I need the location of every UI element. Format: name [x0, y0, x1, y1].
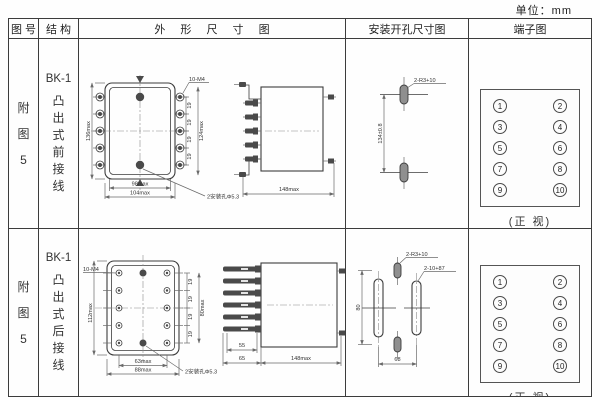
right-dim-label: 124max — [199, 121, 205, 141]
terminal-number: 6 — [553, 141, 567, 155]
structure-cell: BK-1 凸 出 式 前 接 线 — [39, 39, 79, 229]
terminal-panel: 1 2 3 4 5 6 7 8 9 10 — [480, 265, 580, 383]
header-mounting: 安装开孔尺寸图 — [346, 19, 469, 39]
bottom-outer-dim-label: 88max — [135, 368, 152, 374]
rear-studs — [323, 95, 336, 164]
fig-no-cell: 附 图 5 — [9, 39, 39, 229]
height-dim-label: 136max — [86, 121, 92, 141]
right-dim-label: 80max — [200, 299, 206, 316]
spec-sheet-page: 单位：mm 图 号 结 构 外 形 尺 寸 图 安装开孔尺寸图 端子图 附 图 … — [0, 0, 600, 400]
mounting-screw — [140, 270, 147, 277]
side-terminal-studs — [243, 100, 261, 163]
hole-label: 2安装孔Φ5.3 — [185, 368, 217, 376]
terminal-caption: (正 视) — [480, 213, 580, 229]
vertical-dim-label: 134±0.8 — [378, 123, 384, 143]
outline-cell: 136max 19 19 19 19 124max 10-M4 — [79, 39, 346, 229]
blade-dimension: 55 — [227, 333, 257, 353]
structure-char: 式 — [52, 127, 64, 144]
depth-dim-label: 148max — [291, 356, 311, 362]
vertical-dim-label: 80 — [356, 304, 362, 310]
mounting-screw — [136, 161, 144, 169]
bottom-dim-label: 68 — [394, 357, 400, 363]
header-structure: 结 构 — [39, 19, 79, 39]
fig-no-char: 5 — [20, 326, 27, 352]
terminal-number: 5 — [493, 141, 507, 155]
depth-dim-label: 148max — [279, 187, 299, 193]
mounting-hole-callout: 2安装孔Φ5.3 — [143, 169, 239, 201]
header-terminal: 端子图 — [469, 19, 591, 39]
relay-case-front — [95, 255, 193, 363]
terminal-number: 10 — [553, 359, 567, 373]
side-view-drawing: 148max — [233, 79, 341, 209]
structure-char: 线 — [52, 178, 64, 195]
fig-no-char: 5 — [20, 147, 27, 173]
slot-callout: 2-R3+10 — [407, 78, 446, 88]
mounting-cell: 2-R3+10 2-10+87 80 — [346, 229, 469, 396]
terminal-number: 6 — [553, 317, 567, 331]
thread-label: 10-M4 — [83, 267, 99, 273]
structure-char: 出 — [52, 289, 64, 306]
thread-label: 10-M4 — [189, 77, 205, 83]
right-dimension: 124max — [198, 87, 205, 175]
bottom-inner-dim-label: 63max — [135, 359, 152, 365]
relay-case-side — [261, 263, 337, 347]
pitch-label: 19 — [187, 102, 193, 108]
terminal-number: 5 — [493, 317, 507, 331]
mounting-hole-drawing: 134±0.8 2-R3+10 — [354, 75, 454, 197]
mounting-hole-drawing: 2-R3+10 2-10+87 80 — [352, 249, 462, 375]
terminal-number: 8 — [553, 338, 567, 352]
terminal-studs-left — [93, 93, 105, 169]
structure-char: 前 — [52, 144, 64, 161]
bracket-bolt — [239, 172, 246, 177]
structure-char: 后 — [52, 323, 64, 340]
bottom-small-slot — [394, 331, 401, 359]
terminal-number: 8 — [553, 162, 567, 176]
bottom-outer-dim-label: 104max — [130, 191, 150, 197]
terminal-number: 4 — [553, 296, 567, 310]
relay-case-front — [91, 75, 189, 191]
outline-cell: 10-M4 112max 19 19 19 — [79, 229, 346, 396]
bracket-bolt — [239, 82, 246, 87]
fig-no-char: 图 — [17, 121, 29, 147]
small-slot-label: 2-R3+10 — [406, 252, 428, 258]
depth-dimension: 148max — [243, 163, 334, 197]
terminal-number: 10 — [553, 183, 567, 197]
terminal-cell: 1 2 3 4 5 6 7 8 9 10 (正 视) — [469, 229, 591, 396]
top-mounting-ear — [136, 76, 144, 83]
vertical-dimension: 134±0.8 — [378, 95, 384, 173]
big-slot-label: 2-10+87 — [424, 266, 445, 272]
front-view-drawing: 10-M4 112max 19 19 19 — [81, 251, 219, 383]
terminal-number: 7 — [493, 338, 507, 352]
top-small-slot — [394, 257, 401, 285]
unit-label: 单位：mm — [516, 2, 572, 18]
pitch-label: 19 — [188, 331, 194, 337]
structure-char: 式 — [52, 306, 64, 323]
structure-char: 线 — [52, 357, 64, 374]
terminal-caption: (正 视) — [480, 389, 580, 396]
structure-char: 凸 — [52, 93, 64, 110]
height-dim-label: 112max — [88, 303, 94, 323]
pitch-label: 19 — [187, 153, 193, 159]
terminal-number: 1 — [493, 275, 507, 289]
structure-char: 凸 — [52, 272, 64, 289]
mounting-screw — [140, 340, 147, 347]
structure-char: 出 — [52, 110, 64, 127]
terminal-panel: 1 2 3 4 5 6 7 8 9 10 — [480, 89, 580, 207]
bottom-inner-dim-label: 98max — [132, 182, 149, 188]
model-label: BK-1 — [46, 73, 72, 85]
structure-char: 接 — [52, 161, 64, 178]
pitch-label: 19 — [188, 314, 194, 320]
model-label: BK-1 — [46, 252, 72, 264]
structure-cell: BK-1 凸 出 式 后 接 线 — [39, 229, 79, 396]
pitch-label: 19 — [187, 136, 193, 142]
terminal-number: 2 — [553, 275, 567, 289]
terminal-number: 3 — [493, 120, 507, 134]
small-slot-callout: 2-R3+10 — [400, 252, 438, 263]
fig-no-char: 附 — [17, 95, 29, 121]
front-studs — [337, 269, 346, 336]
fig-no-char: 附 — [17, 274, 29, 300]
front-view-drawing: 136max 19 19 19 19 124max 10-M4 — [85, 73, 245, 215]
rear-blade-terminals — [223, 266, 261, 333]
fig-no-char: 图 — [17, 300, 29, 326]
pitch-label: 19 — [188, 279, 194, 285]
terminal-cell: 1 2 3 4 5 6 7 8 9 10 (正 视) — [469, 39, 591, 229]
terminal-number: 1 — [493, 99, 507, 113]
fig-no-cell: 附 图 5 — [9, 229, 39, 396]
mounting-screw — [136, 93, 144, 101]
mounting-cell: 134±0.8 2-R3+10 — [346, 39, 469, 229]
left-tall-slot — [362, 271, 396, 347]
right-dimension: 80max — [199, 273, 206, 343]
blade-dim-label: 55 — [239, 343, 245, 349]
right-tall-slot — [404, 273, 430, 345]
thread-callout: 10-M4 — [83, 267, 116, 273]
pitch-label: 19 — [188, 296, 194, 302]
structure-char: 接 — [52, 340, 64, 357]
terminal-number: 2 — [553, 99, 567, 113]
slot-label: 2-R3+10 — [414, 78, 436, 84]
bottom-slot — [380, 157, 428, 189]
terminal-number: 4 — [553, 120, 567, 134]
terminal-number: 7 — [493, 162, 507, 176]
header-fig-no: 图 号 — [9, 19, 39, 39]
header-outline: 外 形 尺 寸 图 — [79, 19, 346, 39]
base-and-depth-dimensions: 65 148max — [223, 333, 341, 366]
base-dim-label: 65 — [239, 356, 245, 362]
vertical-dimension: 80 — [356, 271, 372, 345]
pitch-label: 19 — [187, 119, 193, 125]
terminal-number: 9 — [493, 183, 507, 197]
spec-table: 图 号 结 构 外 形 尺 寸 图 安装开孔尺寸图 端子图 附 图 5 BK-1… — [8, 18, 592, 397]
side-view-drawing: 55 65 148max — [217, 255, 346, 373]
width-dimensions: 63max 88max — [107, 355, 179, 376]
terminal-number: 9 — [493, 359, 507, 373]
thread-callout: 10-M4 — [183, 77, 209, 93]
terminal-number: 3 — [493, 296, 507, 310]
big-slot-callout: 2-10+87 — [418, 266, 456, 281]
pitch-dimension: 19 19 19 19 — [183, 97, 193, 165]
